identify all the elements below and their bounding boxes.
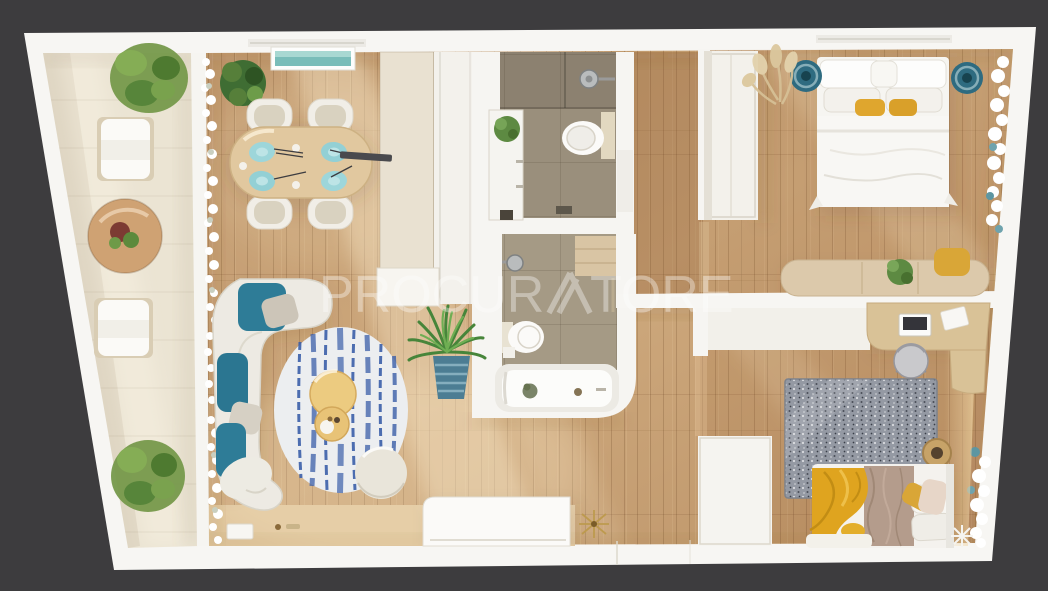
svg-text:TORE: TORE [590, 266, 734, 324]
svg-text:PROCUR: PROCUR [319, 266, 544, 324]
